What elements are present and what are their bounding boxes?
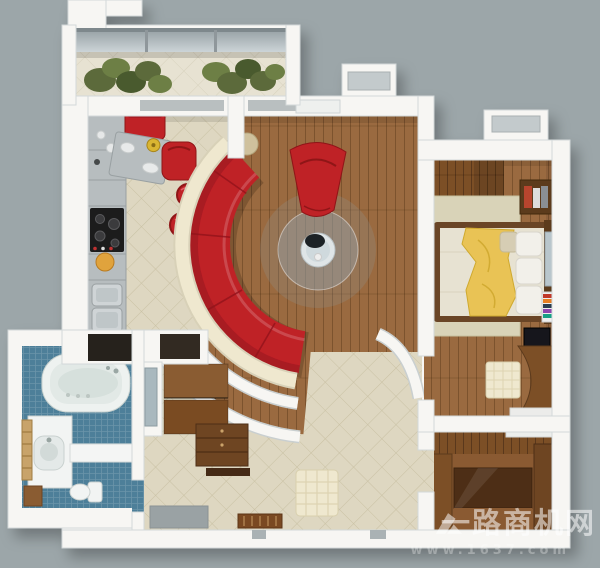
closet-wall-upper <box>418 432 434 450</box>
bath-counter <box>70 444 134 462</box>
pillows <box>516 232 542 314</box>
decor-bowl <box>305 234 325 248</box>
stove <box>90 208 124 252</box>
closet-floor-light <box>454 508 532 528</box>
living-bedroom-wall <box>418 96 434 356</box>
balcony-door-opening <box>140 100 224 111</box>
entry-ottoman <box>296 470 338 516</box>
tv-screen <box>524 328 550 346</box>
bathroom-doorway-floor <box>132 480 144 512</box>
bedroom-closet-wall <box>434 416 570 432</box>
floor-plan-render: 一路商机网 www.1637.com <box>0 0 600 568</box>
entry-door-notch <box>370 530 386 539</box>
kitchen-sink <box>92 284 122 332</box>
bath-wood-shelf <box>24 486 42 506</box>
book-cube-shelf <box>520 180 554 214</box>
bathroom <box>22 346 144 512</box>
beige-cushion <box>500 232 518 252</box>
hall-mirror-panel <box>145 368 157 426</box>
towel-ladder <box>22 420 32 480</box>
kitchen-living-wall-stub <box>228 96 244 158</box>
roof-box-small <box>106 0 142 16</box>
bedroom-top-wall <box>418 140 570 160</box>
entry-door-mat <box>238 514 282 528</box>
closet-glossy-floor-panel <box>454 468 532 508</box>
bottom-wall <box>62 530 570 548</box>
bedroom-window-glass <box>492 116 540 132</box>
living-window-glass <box>348 72 390 90</box>
bed <box>434 220 556 324</box>
door-notch-left <box>252 530 266 539</box>
floor-mat-gray <box>150 506 208 528</box>
hall-shelf <box>206 468 250 476</box>
red-armchair <box>162 142 196 180</box>
hall-dresser <box>196 424 248 466</box>
glass-railing <box>76 30 288 52</box>
apartment <box>8 0 570 548</box>
closet-doorway-floor <box>420 450 434 492</box>
coffee-table <box>301 233 335 267</box>
balcony <box>76 28 288 102</box>
closet-wardrobe-right <box>534 444 554 530</box>
vanity-sink <box>28 416 72 488</box>
dark-niche-left <box>88 334 138 361</box>
left-wall <box>62 96 88 336</box>
apartment-3d-plan <box>0 0 600 568</box>
bathroom-right-wall <box>132 330 144 480</box>
bedroom <box>424 158 556 420</box>
pizza-plate <box>96 253 114 271</box>
closet-room <box>420 428 554 530</box>
living-window-sill <box>296 100 340 113</box>
bedroom-ottoman <box>486 362 520 398</box>
right-wall <box>552 140 570 548</box>
closet-wardrobe-left <box>432 454 452 530</box>
dark-niche-right <box>160 334 200 359</box>
